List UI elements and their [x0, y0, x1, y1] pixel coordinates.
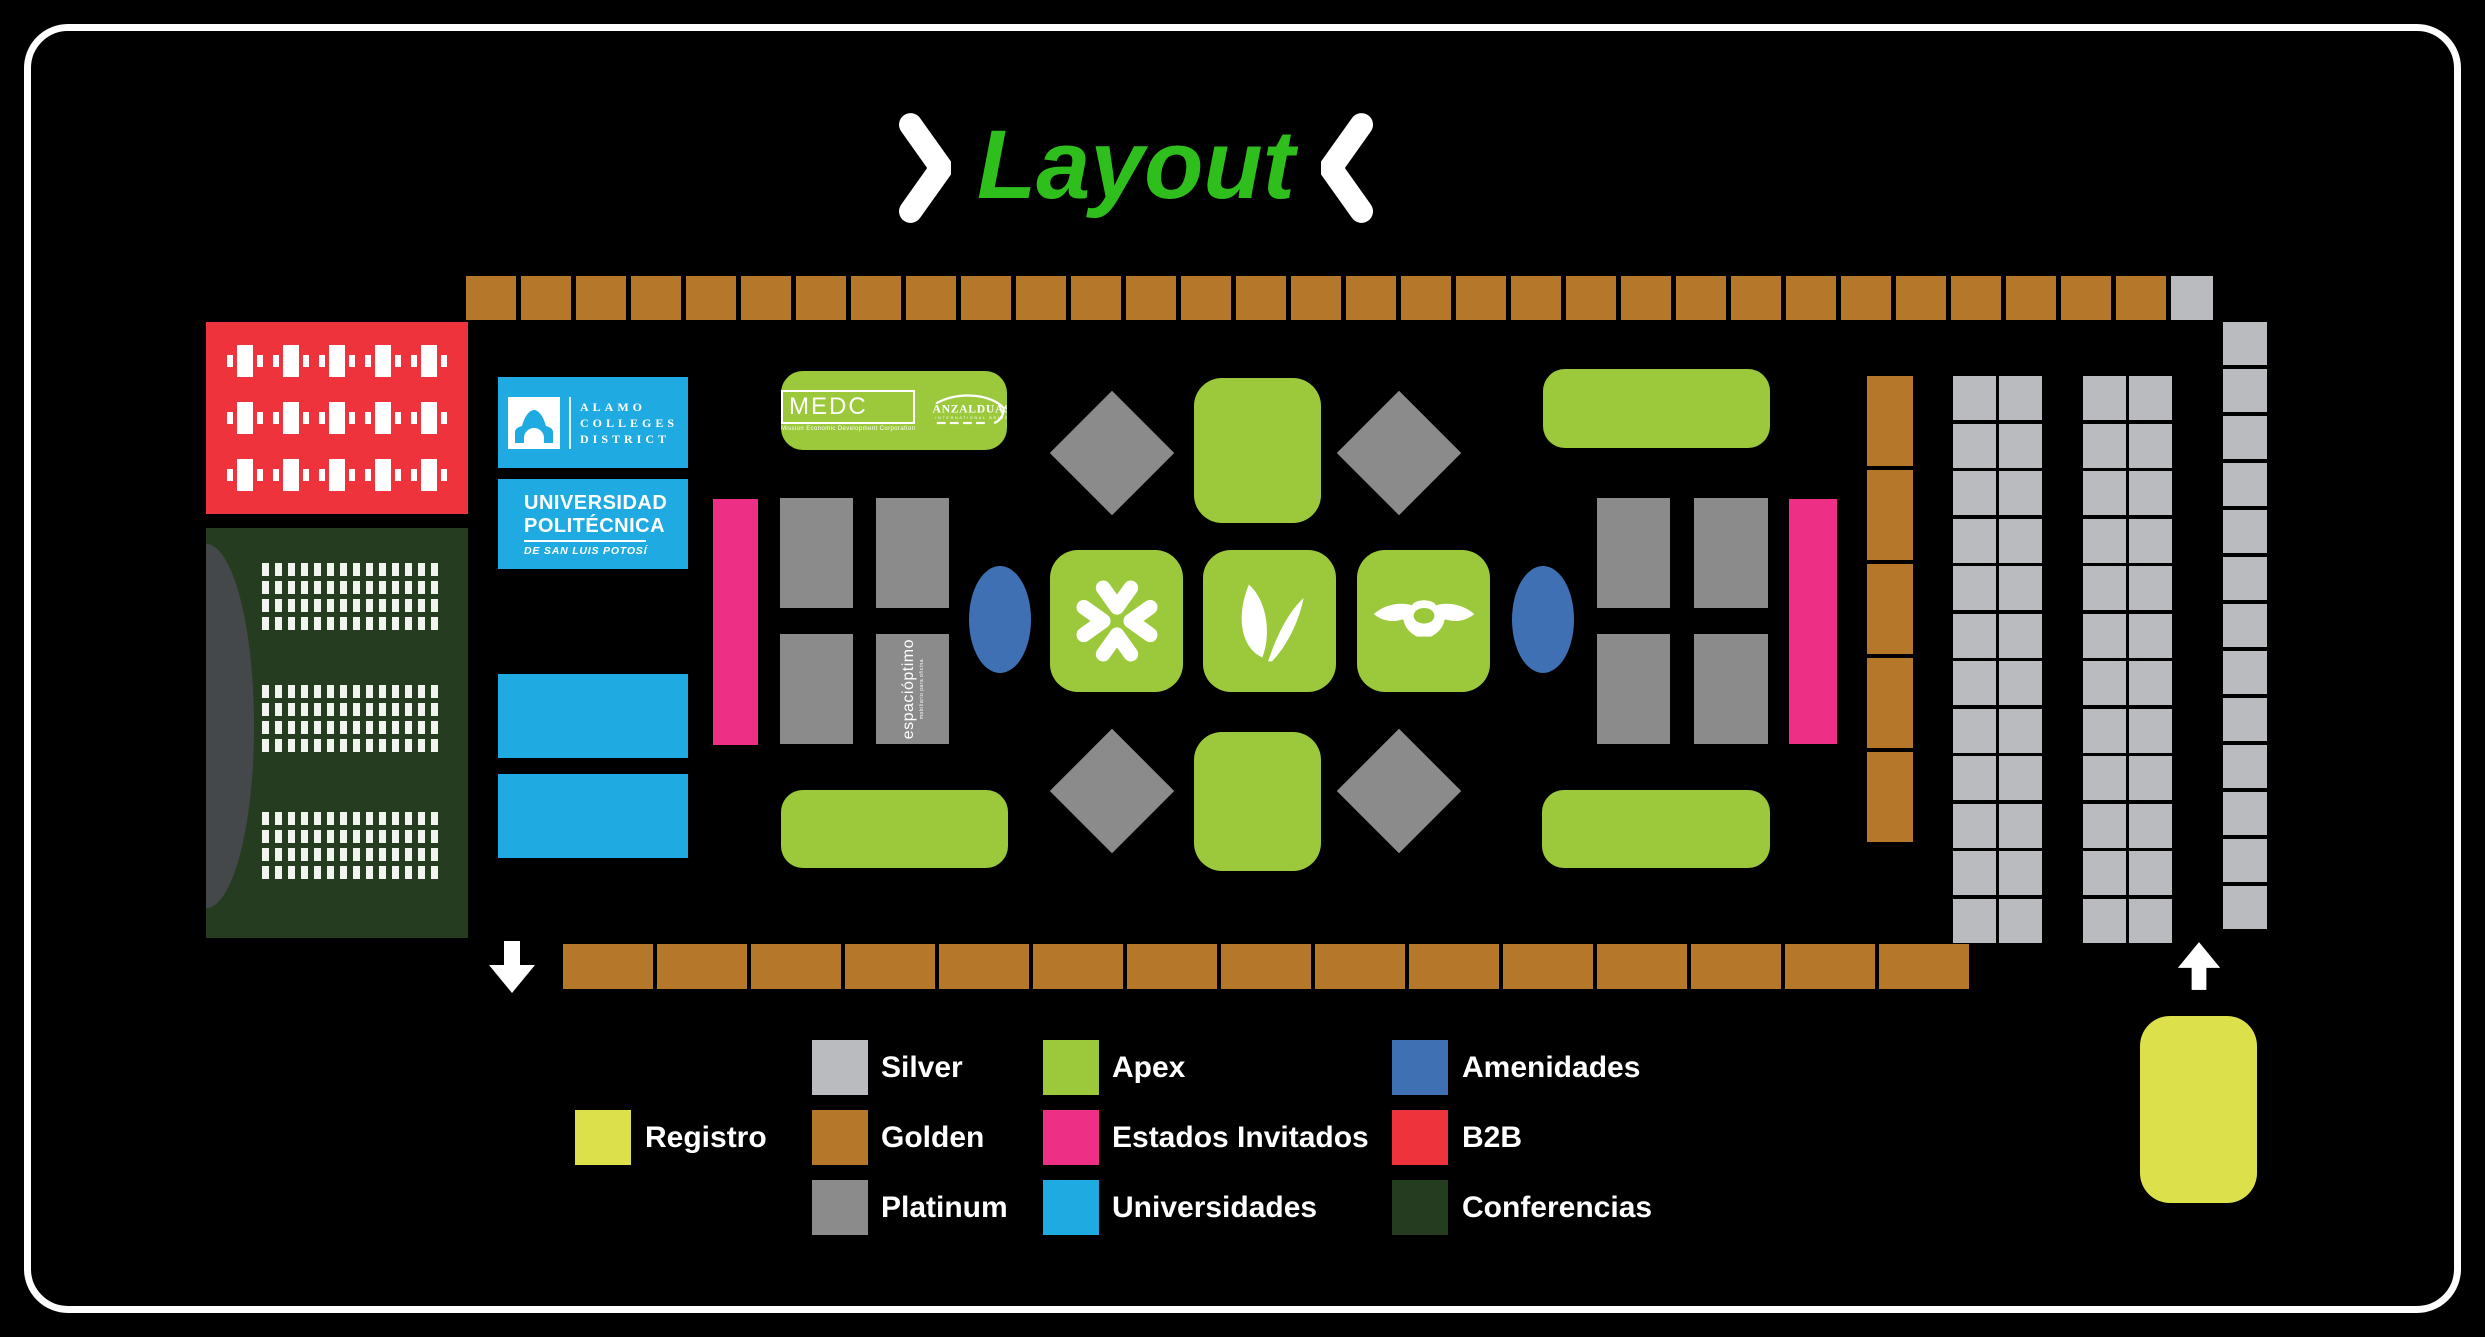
seat [392, 830, 399, 843]
silver-booth-strip [2223, 322, 2267, 929]
seat [431, 685, 438, 698]
seat [262, 830, 269, 843]
seat [275, 563, 282, 576]
silver-booth [2129, 424, 2172, 468]
upslp-line2: POLITÉCNICA [524, 515, 646, 542]
silver-booth [2223, 322, 2267, 365]
seat [392, 812, 399, 825]
b2b-zone [206, 322, 468, 514]
logo-divider [569, 397, 571, 449]
silver-booth [1999, 709, 2042, 753]
seat [327, 617, 334, 630]
seat [431, 830, 438, 843]
anzalduas-logo: ANZALDUAS INTERNATIONAL BRIDGE [931, 387, 1007, 435]
silver-booth [1953, 899, 1996, 943]
seat [405, 685, 412, 698]
golden-booth [686, 276, 736, 320]
seat [301, 685, 308, 698]
silver-booth [2171, 276, 2213, 320]
platinum-booth [1597, 498, 1670, 608]
seat [353, 703, 360, 716]
silver-booth [2223, 839, 2267, 882]
estados-invitados-bar-left [713, 499, 758, 745]
seat [288, 685, 295, 698]
apex-booth-x-logo [1050, 550, 1183, 692]
silver-booth [1999, 851, 2042, 895]
golden-booth [845, 944, 935, 989]
exit-up-arrow-icon [2176, 941, 2222, 991]
seat [418, 848, 425, 861]
seat [353, 617, 360, 630]
seat [366, 685, 373, 698]
silver-booth [2223, 557, 2267, 600]
seat [301, 830, 308, 843]
alamo-line3: DISTRICT [580, 431, 678, 447]
silver-booth [1999, 614, 2042, 658]
silver-booth [1953, 424, 1996, 468]
seat [340, 866, 347, 879]
seat [327, 721, 334, 734]
upslp-line3: DE SAN LUIS POTOSÍ [524, 545, 688, 557]
silver-booth [1999, 899, 2042, 943]
legend-label-amenidades: Amenidades [1462, 1040, 1640, 1095]
b2b-table-icon [319, 400, 355, 436]
seat [431, 739, 438, 752]
seat [366, 581, 373, 594]
silver-booth [2129, 566, 2172, 610]
silver-booth [2223, 886, 2267, 929]
legend-swatch-platinum [812, 1180, 868, 1235]
silver-booth [2083, 661, 2126, 705]
seat [301, 848, 308, 861]
silver-booth [2083, 709, 2126, 753]
platinum-booth [1597, 634, 1670, 744]
alamo-logo-text: ALAMO COLLEGES DISTRICT [580, 399, 678, 447]
seat [379, 848, 386, 861]
seat [418, 617, 425, 630]
golden-booth [1676, 276, 1726, 320]
silver-booth [2129, 661, 2172, 705]
seat [340, 739, 347, 752]
b2b-table-icon [411, 457, 447, 493]
seat [288, 563, 295, 576]
seat [366, 563, 373, 576]
silver-booth [1999, 471, 2042, 515]
seat [327, 739, 334, 752]
silver-booth [2083, 566, 2126, 610]
seat [327, 581, 334, 594]
golden-booth [1346, 276, 1396, 320]
b2b-table-icon [227, 457, 263, 493]
golden-booth [1951, 276, 2001, 320]
platinum-booth [1694, 634, 1768, 744]
golden-booth [1315, 944, 1405, 989]
golden-booth [1867, 376, 1913, 466]
top-golden-booth-row [466, 276, 2213, 320]
legend-label-apex: Apex [1112, 1040, 1185, 1095]
seat [366, 703, 373, 716]
platinum-booth [876, 498, 949, 608]
medc-logo-text: MEDC [781, 390, 915, 424]
b2b-table-icon [319, 343, 355, 379]
seat [275, 581, 282, 594]
golden-booth [1511, 276, 1561, 320]
legend-label-universidades: Universidades [1112, 1180, 1317, 1235]
silver-booth [1953, 471, 1996, 515]
seat [288, 617, 295, 630]
legend-swatch-universidades [1043, 1180, 1099, 1235]
seat [262, 563, 269, 576]
seat [353, 866, 360, 879]
alamo-line1: ALAMO [580, 399, 678, 415]
seat [288, 721, 295, 734]
seat [314, 617, 321, 630]
seat [379, 563, 386, 576]
seat [262, 739, 269, 752]
golden-booth [657, 944, 747, 989]
seat [405, 866, 412, 879]
golden-booth [2006, 276, 2056, 320]
seat [431, 848, 438, 861]
seat [379, 685, 386, 698]
legend-label-estados_invitados: Estados Invitados [1112, 1110, 1369, 1165]
legend-label-silver: Silver [881, 1040, 963, 1095]
golden-booth [751, 944, 841, 989]
legend-swatch-estados_invitados [1043, 1110, 1099, 1165]
alamo-arch-logo-icon [508, 397, 560, 449]
golden-booth [1896, 276, 1946, 320]
seat [405, 812, 412, 825]
seat [275, 866, 282, 879]
seat [418, 599, 425, 612]
seat [301, 599, 308, 612]
seat [288, 848, 295, 861]
seat [301, 721, 308, 734]
seat [379, 581, 386, 594]
golden-booth [1621, 276, 1671, 320]
silver-booth [2129, 756, 2172, 800]
seat [327, 812, 334, 825]
seat [275, 703, 282, 716]
golden-booth [939, 944, 1029, 989]
anzalduas-mini-words [937, 421, 985, 423]
golden-booth [1841, 276, 1891, 320]
seat [431, 563, 438, 576]
golden-booth [1867, 658, 1913, 748]
golden-booth [961, 276, 1011, 320]
golden-booth [1785, 944, 1875, 989]
golden-booth [466, 276, 516, 320]
seat [392, 866, 399, 879]
seat [431, 617, 438, 630]
seat [314, 848, 321, 861]
seat [327, 830, 334, 843]
seat [366, 830, 373, 843]
seat [288, 739, 295, 752]
golden-booth [631, 276, 681, 320]
legend-swatch-golden [812, 1110, 868, 1165]
silver-booth [2083, 376, 2126, 420]
b2b-table-icon [365, 400, 401, 436]
golden-booth-column [1867, 376, 1913, 842]
seat [288, 599, 295, 612]
seat [262, 581, 269, 594]
seat [288, 830, 295, 843]
legend-swatch-registro [575, 1110, 631, 1165]
silver-booth [1953, 709, 1996, 753]
seat [353, 685, 360, 698]
registro-zone [2140, 1016, 2257, 1203]
bottom-golden-booth-row [563, 944, 1969, 989]
seat [405, 563, 412, 576]
silver-booth [2223, 792, 2267, 835]
silver-booth [2223, 604, 2267, 647]
seat [379, 703, 386, 716]
seat [262, 866, 269, 879]
seat [340, 685, 347, 698]
platinum-booth [780, 498, 853, 608]
seat [418, 703, 425, 716]
seat [314, 866, 321, 879]
seat [301, 739, 308, 752]
apex-booth-top-right [1543, 369, 1770, 448]
seat [314, 563, 321, 576]
seat [327, 866, 334, 879]
b2b-table-icon [273, 343, 309, 379]
seat [275, 617, 282, 630]
booth-universidad-2 [498, 774, 688, 858]
b2b-table-icon [227, 343, 263, 379]
silver-booth-grid-left [1953, 376, 2042, 943]
seat-block [262, 812, 438, 879]
seat [314, 599, 321, 612]
golden-booth [1691, 944, 1781, 989]
seat [340, 721, 347, 734]
seat [340, 563, 347, 576]
platinum-booth [780, 634, 853, 744]
seat [275, 685, 282, 698]
silver-booth [1953, 566, 1996, 610]
golden-booth [1566, 276, 1616, 320]
silver-booth [2129, 899, 2172, 943]
seat [379, 812, 386, 825]
medc-logo: MEDC Mission Economic Development Corpor… [781, 390, 915, 432]
seat [301, 563, 308, 576]
chevron-left-icon [1321, 112, 1373, 224]
seat [262, 812, 269, 825]
b2b-table-icon [319, 457, 355, 493]
seat [392, 848, 399, 861]
seat [392, 685, 399, 698]
platinum-booth-espacioptimo: espacióptimo mobiliario para oficina [876, 634, 949, 744]
seat [301, 812, 308, 825]
golden-booth [1597, 944, 1687, 989]
golden-booth [1456, 276, 1506, 320]
silver-booth [1999, 424, 2042, 468]
seat [366, 848, 373, 861]
seat [392, 617, 399, 630]
anzalduas-logo-text: ANZALDUAS [933, 402, 1007, 415]
seat [340, 617, 347, 630]
golden-booth [1291, 276, 1341, 320]
seat [301, 703, 308, 716]
golden-booth [1409, 944, 1499, 989]
seat [418, 721, 425, 734]
silver-booth [2129, 709, 2172, 753]
seat [379, 617, 386, 630]
seat [275, 721, 282, 734]
silver-booth [2129, 851, 2172, 895]
legend-label-golden: Golden [881, 1110, 984, 1165]
silver-booth [1999, 566, 2042, 610]
silver-booth [2223, 698, 2267, 741]
golden-booth [1127, 944, 1217, 989]
silver-booth [1999, 661, 2042, 705]
entrance-down-arrow-icon [487, 941, 537, 993]
seat [301, 617, 308, 630]
seat [353, 721, 360, 734]
legend-swatch-silver [812, 1040, 868, 1095]
apex-booth-bottom-left [781, 790, 1008, 868]
legend-swatch-apex [1043, 1040, 1099, 1095]
silver-booth [1953, 614, 1996, 658]
conference-zone [206, 528, 468, 938]
silver-booth [2223, 510, 2267, 553]
silver-booth [1953, 376, 1996, 420]
silver-booth-grid-right [2083, 376, 2172, 943]
golden-booth [1016, 276, 1066, 320]
silver-booth [2129, 804, 2172, 848]
seat [314, 721, 321, 734]
golden-booth [1786, 276, 1836, 320]
medc-logo-caption: Mission Economic Development Corporation [781, 426, 915, 432]
booth-universidad-1 [498, 674, 688, 758]
silver-booth [2223, 745, 2267, 788]
seat [327, 848, 334, 861]
golden-booth [1867, 564, 1913, 654]
seat [418, 563, 425, 576]
seat [405, 721, 412, 734]
silver-booth [2223, 416, 2267, 459]
seat [340, 848, 347, 861]
golden-booth [906, 276, 956, 320]
seat [314, 812, 321, 825]
seat [431, 599, 438, 612]
golden-booth [851, 276, 901, 320]
silver-booth [2083, 756, 2126, 800]
seat [262, 703, 269, 716]
page-title: Layout [977, 112, 1295, 225]
amenidades-oval-left [969, 566, 1031, 673]
seat [366, 721, 373, 734]
golden-booth [1503, 944, 1593, 989]
silver-booth [1999, 376, 2042, 420]
x-cross-logo-icon [1071, 575, 1163, 667]
espacioptimo-logo-caption: mobiliario para oficina [919, 659, 925, 719]
seat [353, 739, 360, 752]
golden-booth [1867, 752, 1913, 842]
booth-alamo-colleges: ALAMO COLLEGES DISTRICT [498, 377, 688, 468]
seat [379, 599, 386, 612]
seat-block [262, 563, 438, 630]
seat [340, 599, 347, 612]
seat [431, 581, 438, 594]
golden-booth [1879, 944, 1969, 989]
seat [379, 721, 386, 734]
seat [405, 599, 412, 612]
golden-booth [1401, 276, 1451, 320]
silver-booth [2223, 369, 2267, 412]
seat [262, 617, 269, 630]
silver-booth [1999, 519, 2042, 563]
golden-booth [1731, 276, 1781, 320]
boat-cleat-logo-icon [1372, 593, 1476, 649]
seat [418, 685, 425, 698]
seat [288, 581, 295, 594]
floor-plan-poster: Layout ALAMO COLLEGES DISTRICT UNIVERSID… [0, 0, 2485, 1337]
golden-booth [1033, 944, 1123, 989]
b2b-table-icon [273, 400, 309, 436]
seat [405, 581, 412, 594]
seat [327, 703, 334, 716]
silver-booth [2083, 471, 2126, 515]
seat [379, 866, 386, 879]
golden-booth [796, 276, 846, 320]
silver-booth [2129, 519, 2172, 563]
platinum-booth [1694, 498, 1768, 608]
golden-booth [2116, 276, 2166, 320]
seat [366, 617, 373, 630]
b2b-table-icon [365, 343, 401, 379]
alamo-line2: COLLEGES [580, 415, 678, 431]
silver-booth [2083, 519, 2126, 563]
seat [275, 848, 282, 861]
booth-medc-anzalduas: MEDC Mission Economic Development Corpor… [781, 371, 1007, 450]
silver-booth [2129, 614, 2172, 658]
silver-booth [1999, 804, 2042, 848]
seat [275, 830, 282, 843]
golden-booth [1867, 470, 1913, 560]
seat [288, 866, 295, 879]
b2b-table-icon [411, 343, 447, 379]
silver-booth [1953, 519, 1996, 563]
silver-booth [2223, 463, 2267, 506]
silver-booth [2223, 651, 2267, 694]
seat [392, 721, 399, 734]
apex-booth-bottom-right [1542, 790, 1770, 868]
seat [418, 830, 425, 843]
seat [262, 685, 269, 698]
seat [431, 812, 438, 825]
seat [262, 848, 269, 861]
seat [366, 812, 373, 825]
seat [379, 830, 386, 843]
silver-booth [2083, 614, 2126, 658]
seat [392, 563, 399, 576]
seat [275, 599, 282, 612]
legend-label-conferencias: Conferencias [1462, 1180, 1652, 1235]
seat [262, 721, 269, 734]
golden-booth [1221, 944, 1311, 989]
seat [405, 617, 412, 630]
seat [301, 866, 308, 879]
golden-booth [2061, 276, 2111, 320]
seat [314, 703, 321, 716]
booth-universidad-politecnica: UNIVERSIDAD POLITÉCNICA DE SAN LUIS POTO… [498, 479, 688, 569]
legend-swatch-b2b [1392, 1110, 1448, 1165]
seat [418, 739, 425, 752]
b2b-table-icon [411, 400, 447, 436]
